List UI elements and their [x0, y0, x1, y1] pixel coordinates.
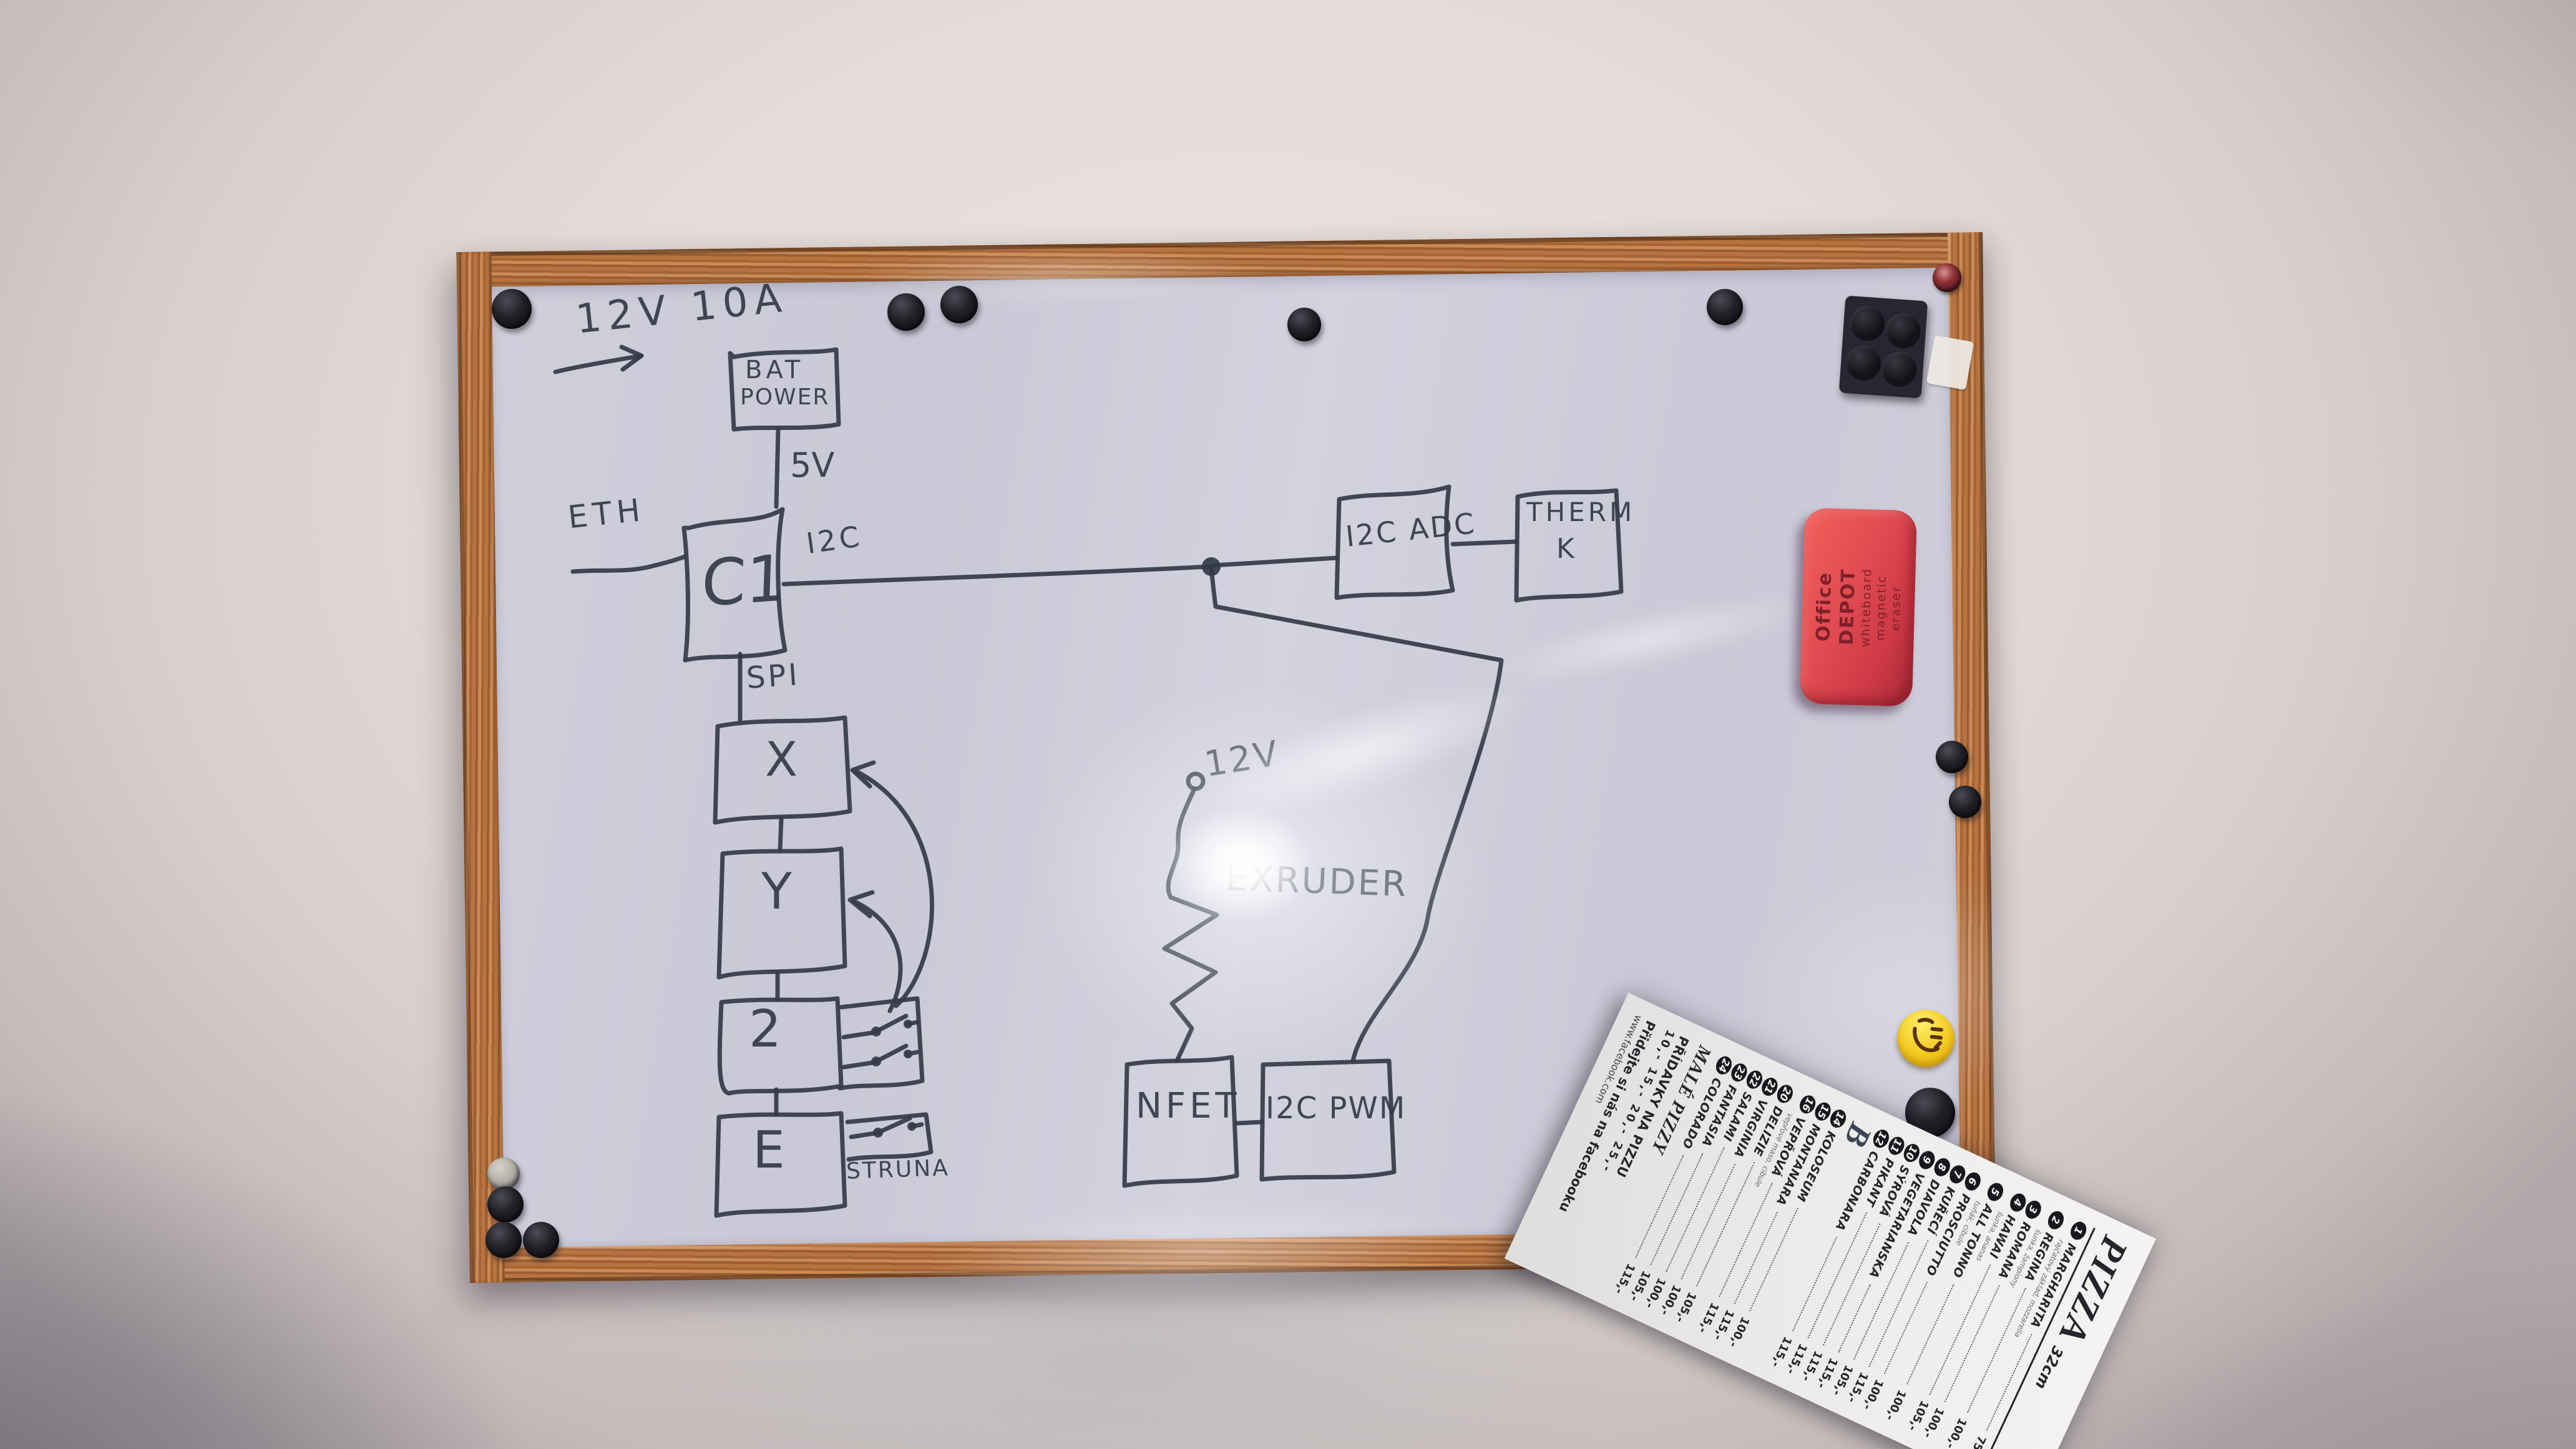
black-magnet: [1707, 289, 1743, 325]
black-magnet: [887, 293, 925, 331]
maroon-magnet: [1933, 263, 1961, 292]
tray-magnet: [1845, 344, 1882, 382]
therm-label: K: [1556, 533, 1574, 565]
black-magnet: [1949, 786, 1981, 818]
e-axis-label: E: [753, 1121, 785, 1180]
i2c-pwm-label: I2C PWM: [1266, 1091, 1406, 1126]
black-magnet: [487, 1186, 524, 1222]
y-axis-label: Y: [761, 862, 792, 920]
whiteboard-eraser: Office DEPOT whiteboard magnetic eraser: [1800, 508, 1917, 707]
5v-label: 5V: [790, 446, 834, 485]
black-magnet: [1936, 741, 1968, 773]
black-magnet: [1287, 308, 1321, 341]
whiteboard-photo: 12V 10A ETH 5V I2C SPI 12V EXRUDER STRUN…: [0, 0, 2576, 1449]
x-axis-label: X: [765, 731, 798, 787]
black-magnet: [492, 289, 532, 329]
tray-magnet: [1849, 305, 1886, 342]
struna-label: STRUNA: [846, 1155, 950, 1184]
magnet-tray: [1839, 296, 1928, 399]
gray-magnet: [487, 1158, 520, 1190]
tape-piece: [1926, 335, 1974, 390]
z-axis-label: 2: [749, 1000, 781, 1059]
menu-item-number: 1: [2068, 1219, 2089, 1242]
tray-magnet: [1881, 351, 1918, 388]
c1-label: C1: [700, 541, 788, 622]
bat-power-label: POWER: [740, 384, 829, 410]
tray-magnet: [1885, 312, 1922, 349]
nfet-label: NFET: [1136, 1086, 1241, 1126]
eraser-brand: Office DEPOT: [1812, 568, 1860, 645]
extruder-label: EXRUDER: [1225, 858, 1408, 905]
black-magnet: [940, 286, 978, 323]
spi-label: SPI: [745, 657, 801, 696]
black-magnet: [523, 1222, 559, 1258]
menu-size-note: 32cm: [2032, 1344, 2067, 1392]
therm-label: THERM: [1526, 497, 1635, 527]
black-magnet: [485, 1222, 522, 1258]
bat-power-label: BAT: [745, 356, 804, 384]
eraser-product: whiteboard magnetic eraser: [1858, 568, 1903, 647]
